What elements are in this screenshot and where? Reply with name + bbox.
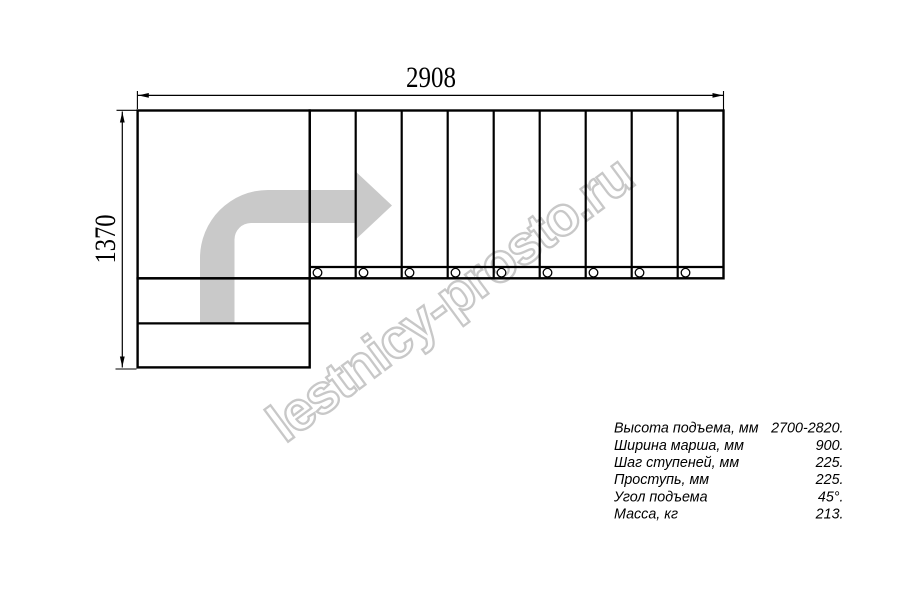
svg-text:225.: 225.	[815, 455, 844, 471]
svg-text:225.: 225.	[815, 472, 844, 488]
svg-text:2908: 2908	[406, 61, 456, 94]
svg-text:Масса, кг: Масса, кг	[614, 507, 678, 523]
svg-text:Шаг ступеней, мм: Шаг ступеней, мм	[614, 455, 739, 471]
svg-text:213.: 213.	[815, 507, 844, 523]
svg-text:2700-2820.: 2700-2820.	[770, 421, 843, 437]
svg-text:Высота подъема, мм: Высота подъема, мм	[614, 421, 759, 437]
svg-text:Угол подъема: Угол подъема	[613, 489, 708, 505]
svg-text:1370: 1370	[89, 215, 122, 264]
svg-text:Проступь, мм: Проступь, мм	[614, 472, 709, 488]
svg-text:900.: 900.	[816, 438, 844, 454]
svg-text:45°.: 45°.	[818, 489, 844, 505]
svg-text:Ширина марша, мм: Ширина марша, мм	[614, 438, 744, 454]
